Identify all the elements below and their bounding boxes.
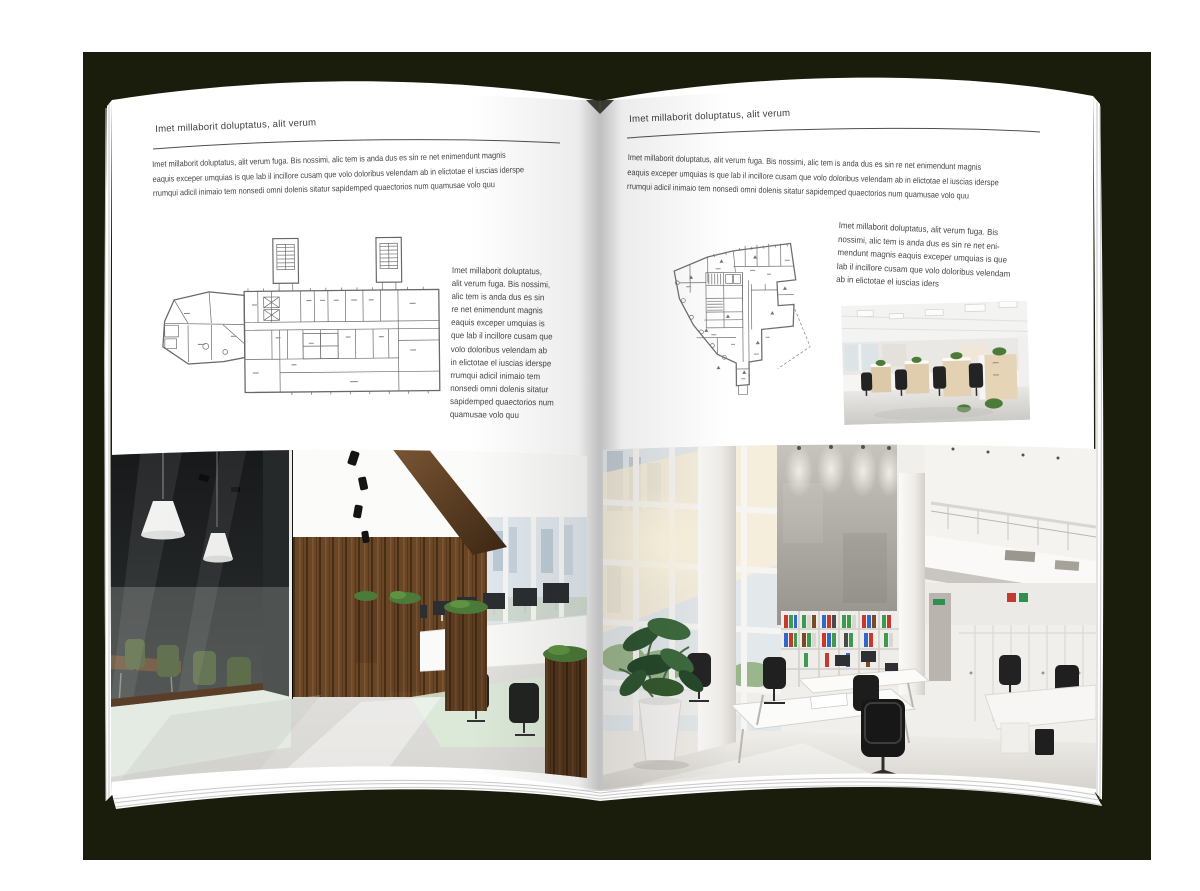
right-page-side-text: Imet millaborit doluptatus, alit verum f… (836, 219, 1012, 295)
office-photo-left (111, 447, 587, 792)
exit-sign (933, 599, 945, 605)
left-page-side-text: Imet millaborit doluptatus,alit verum fu… (450, 264, 556, 423)
floor-plan-right (656, 221, 816, 414)
magazine-mockup-stage: Imet millaborit doluptatus, alit verum I… (0, 0, 1200, 891)
office-photo-right (603, 443, 1096, 793)
office-photo-small (841, 301, 1030, 425)
plan-annotations (184, 299, 416, 383)
concrete-wall (777, 443, 901, 625)
first-aid-sign-red (1007, 593, 1016, 602)
waste-bin (1035, 729, 1054, 755)
column (698, 443, 736, 777)
round-column (899, 473, 925, 695)
first-aid-sign-green (1019, 593, 1028, 602)
floor-plan-left (154, 235, 448, 410)
